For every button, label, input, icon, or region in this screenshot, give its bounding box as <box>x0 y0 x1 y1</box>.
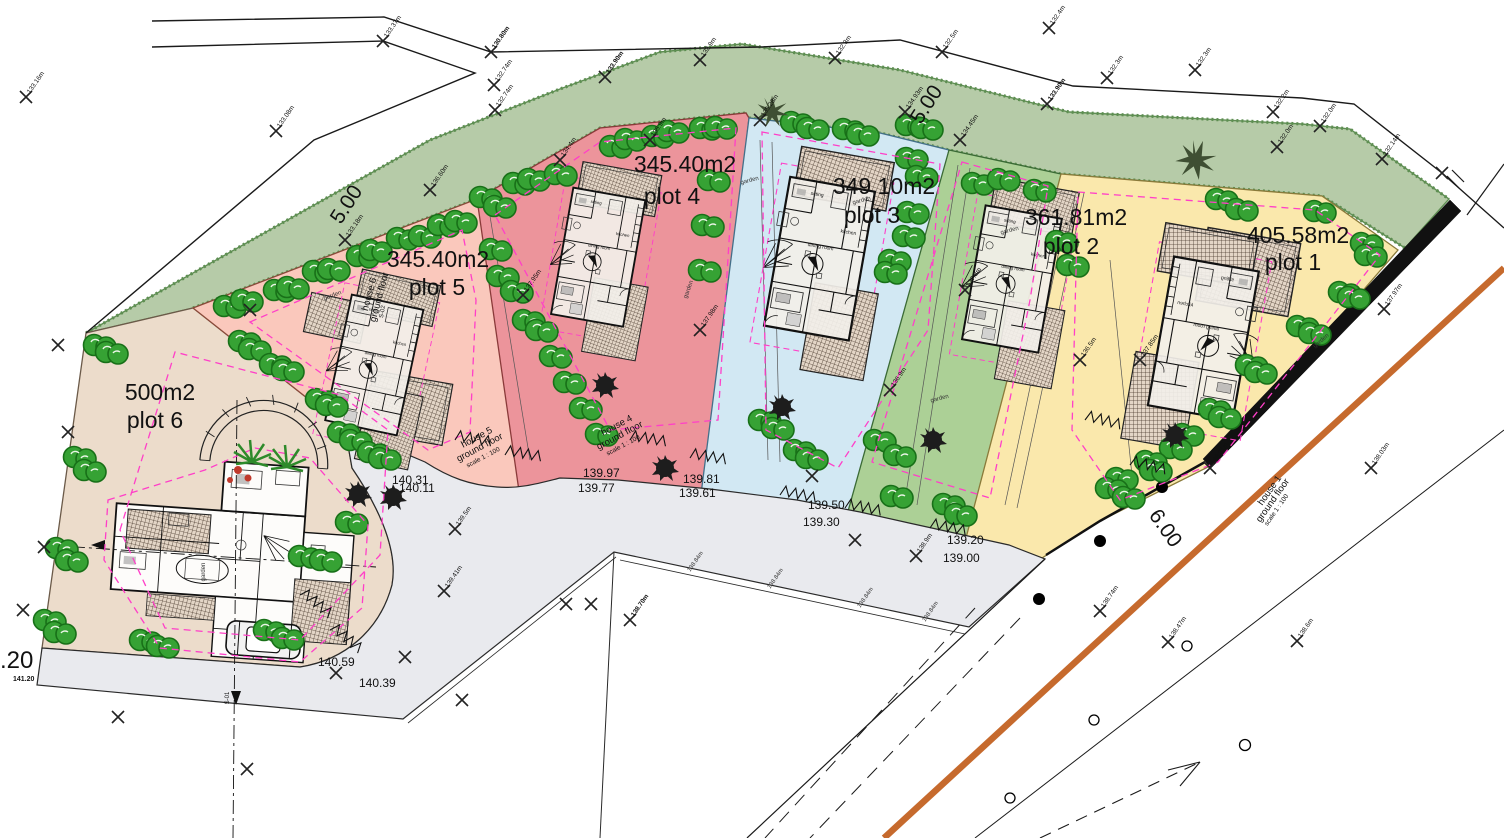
svg-text:132.14m: 132.14m <box>1382 132 1402 157</box>
svg-text:plot 4: plot 4 <box>644 183 700 209</box>
svg-text:139.20: 139.20 <box>947 533 984 547</box>
svg-text:141.20: 141.20 <box>13 676 35 683</box>
svg-text:140.59: 140.59 <box>318 655 355 669</box>
svg-text:.20: .20 <box>0 647 33 674</box>
svg-text:130.80m: 130.80m <box>491 25 512 50</box>
svg-text:140.11: 140.11 <box>399 481 435 495</box>
svg-text:plot 2: plot 2 <box>1043 233 1099 259</box>
svg-text:6.00: 6.00 <box>1144 505 1186 552</box>
svg-text:140.39: 140.39 <box>359 676 396 690</box>
svg-text:132.2m: 132.2m <box>1273 88 1291 110</box>
svg-text:132.3m: 132.3m <box>1107 54 1125 76</box>
svg-text:133.90m: 133.90m <box>1047 77 1068 102</box>
svg-text:349.10m2: 349.10m2 <box>833 173 935 199</box>
svg-text:plot 5: plot 5 <box>409 274 465 300</box>
svg-text:132.0m: 132.0m <box>1320 102 1338 124</box>
svg-text:132.74m: 132.74m <box>495 83 515 108</box>
svg-text:345.40m2: 345.40m2 <box>634 151 736 177</box>
svg-text:132.3m: 132.3m <box>835 34 853 56</box>
svg-text:plot 1: plot 1 <box>1265 249 1321 275</box>
svg-text:139.61: 139.61 <box>679 486 716 500</box>
svg-text:345.40m2: 345.40m2 <box>387 246 489 272</box>
svg-text:garden: garden <box>201 563 207 582</box>
svg-text:132.5m: 132.5m <box>942 28 960 50</box>
svg-text:138.03m: 138.03m <box>1371 441 1391 466</box>
svg-text:138.47m: 138.47m <box>1168 615 1188 640</box>
svg-text:139.30: 139.30 <box>803 515 840 529</box>
svg-text:138.6m: 138.6m <box>1297 617 1315 639</box>
svg-text:138.70m: 138.70m <box>630 593 651 618</box>
svg-text:138.74m: 138.74m <box>1100 584 1120 609</box>
svg-text:133.16m: 133.16m <box>26 70 46 95</box>
svg-text:139.00: 139.00 <box>943 551 980 565</box>
svg-text:132.3m: 132.3m <box>1195 46 1213 68</box>
svg-text:plot 3: plot 3 <box>844 202 900 228</box>
svg-text:132.74m: 132.74m <box>494 58 514 83</box>
svg-text:132.4m: 132.4m <box>1049 4 1067 26</box>
svg-text:139.77: 139.77 <box>578 481 615 495</box>
svg-text:500m2: 500m2 <box>125 379 195 405</box>
svg-text:133.08m: 133.08m <box>276 104 296 129</box>
svg-text:361.81m2: 361.81m2 <box>1025 204 1127 230</box>
svg-text:139.50: 139.50 <box>808 498 845 512</box>
svg-text:plot 6: plot 6 <box>127 407 183 433</box>
svg-text:139.97: 139.97 <box>583 466 620 480</box>
svg-text:139.81: 139.81 <box>683 472 720 486</box>
svg-text:405.58m2: 405.58m2 <box>1247 222 1349 248</box>
svg-text:S-01: S-01 <box>225 691 231 704</box>
